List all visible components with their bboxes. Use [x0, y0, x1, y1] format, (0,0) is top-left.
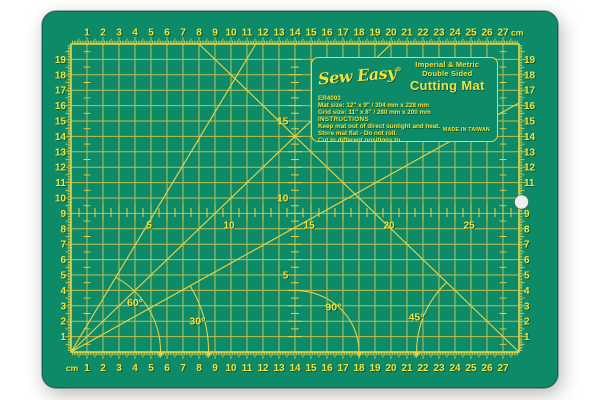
- ruler-number-right: 12: [524, 163, 536, 174]
- panel-tagline-2: Double Sided: [401, 70, 493, 79]
- ruler-number-top: 20: [385, 28, 397, 39]
- ruler-number-left: 13: [55, 147, 67, 158]
- ruler-number-top: 11: [242, 28, 253, 39]
- registered-mark: ®: [395, 66, 401, 73]
- ruler-number-right: 15: [524, 117, 536, 128]
- ruler-number-bottom: 10: [225, 363, 237, 374]
- angle-label-60: 60°: [127, 297, 143, 309]
- ruler-number-bottom: 22: [417, 363, 429, 374]
- ruler-number-top: 6: [164, 28, 170, 39]
- ruler-number-top: 14: [289, 28, 301, 39]
- center-v-ruler-number: 5: [283, 271, 289, 282]
- ruler-number-left: 14: [55, 132, 67, 143]
- model-number: ER4093: [318, 95, 491, 102]
- ruler-number-top: 15: [305, 28, 317, 39]
- ruler-number-top: 23: [433, 28, 445, 39]
- ruler-number-bottom: 16: [321, 363, 333, 374]
- ruler-number-left: 2: [60, 317, 66, 328]
- center-h-ruler-number: 10: [223, 220, 235, 231]
- ruler-number-top: 2: [100, 28, 106, 39]
- ruler-number-top: 3: [116, 28, 122, 39]
- panel-header: Sew Easy® Imperial & Metric Double Sided…: [312, 58, 497, 94]
- ruler-number-top: 17: [337, 28, 349, 39]
- ruler-number-right: 7: [524, 240, 530, 251]
- ruler-number-top: 24: [449, 28, 461, 39]
- ruler-number-right: 1: [524, 332, 530, 343]
- angle-label-45: 45°: [409, 311, 425, 323]
- ruler-number-right: 3: [524, 301, 530, 312]
- ruler-number-left: 1: [60, 332, 66, 343]
- ruler-number-right: 16: [524, 101, 536, 112]
- instruction-line: Cut in different positions to: [318, 137, 491, 142]
- ruler-number-bottom: 12: [257, 363, 269, 374]
- ruler-number-top: 1: [84, 28, 90, 39]
- ruler-number-bottom: 17: [337, 363, 349, 374]
- angle-label-90: 90°: [325, 301, 341, 313]
- ruler-number-right: 4: [524, 286, 530, 297]
- ruler-number-top: 26: [481, 28, 493, 39]
- ruler-number-top: 21: [401, 28, 413, 39]
- ruler-number-right: 5: [524, 271, 530, 282]
- ruler-number-top: 4: [132, 28, 138, 39]
- ruler-number-left: 18: [55, 70, 67, 81]
- ruler-number-top: 9: [212, 28, 218, 39]
- ruler-number-left: 15: [55, 117, 67, 128]
- ruler-number-top: 8: [196, 28, 202, 39]
- ruler-number-top: 19: [369, 28, 381, 39]
- made-in-label: MADE IN TAIWAN: [443, 127, 490, 133]
- ruler-number-right: 6: [524, 255, 530, 266]
- ruler-number-right: 8: [524, 224, 530, 235]
- ruler-number-bottom: 6: [164, 363, 170, 374]
- ruler-number-left: 3: [60, 301, 66, 312]
- ruler-number-left: 19: [55, 55, 67, 66]
- ruler-number-bottom: 7: [180, 363, 186, 374]
- center-h-ruler-number: 25: [463, 220, 475, 231]
- ruler-number-top: 18: [353, 28, 365, 39]
- ruler-number-top: 25: [465, 28, 477, 39]
- ruler-number-left: 16: [55, 101, 67, 112]
- ruler-number-right: 18: [524, 70, 536, 81]
- cutting-mat: 5101551015202560°30°90°45°12345678910111…: [0, 0, 600, 400]
- ruler-number-left: 6: [60, 255, 66, 266]
- label-panel: Sew Easy® Imperial & Metric Double Sided…: [311, 57, 498, 142]
- panel-titles: Imperial & Metric Double Sided Cutting M…: [401, 61, 493, 94]
- center-v-ruler-number: 10: [277, 194, 289, 205]
- ruler-number-top: 12: [257, 28, 269, 39]
- ruler-number-top: 7: [180, 28, 186, 39]
- ruler-number-bottom: 13: [273, 363, 285, 374]
- brand-name: Sew Easy: [317, 63, 396, 89]
- ruler-number-left: 8: [60, 224, 66, 235]
- ruler-number-left: 7: [60, 240, 66, 251]
- ruler-number-bottom: 4: [132, 363, 138, 374]
- ruler-number-right: 9: [524, 209, 530, 220]
- ruler-number-left: 11: [55, 178, 66, 189]
- angle-label-30: 30°: [189, 315, 205, 327]
- ruler-number-right: 19: [524, 55, 536, 66]
- ruler-number-right: 2: [524, 317, 530, 328]
- ruler-number-bottom: 24: [449, 363, 461, 374]
- ruler-number-bottom: 21: [401, 363, 413, 374]
- panel-title: Cutting Mat: [401, 79, 493, 94]
- ruler-number-top: 5: [148, 28, 154, 39]
- instructions-heading: INSTRUCTIONS: [318, 116, 491, 123]
- brand-logo: Sew Easy®: [317, 62, 402, 88]
- unit-label-bottom: cm: [66, 363, 79, 373]
- center-v-ruler-number: 15: [277, 117, 289, 128]
- ruler-number-right: 13: [524, 147, 536, 158]
- ruler-number-bottom: 26: [481, 363, 493, 374]
- ruler-number-left: 5: [60, 271, 66, 282]
- mat-size-line: Mat size: 12" x 9" / 304 mm x 228 mm: [318, 102, 491, 109]
- ruler-number-bottom: 27: [497, 363, 509, 374]
- ruler-number-right: 17: [524, 86, 536, 97]
- ruler-number-bottom: 1: [84, 363, 90, 374]
- ruler-number-bottom: 18: [353, 363, 365, 374]
- product-photo: 5101551015202560°30°90°45°12345678910111…: [0, 0, 600, 400]
- ruler-number-bottom: 2: [100, 363, 106, 374]
- center-h-ruler-number: 20: [383, 220, 395, 231]
- ruler-number-top: 10: [225, 28, 237, 39]
- ruler-number-bottom: 14: [289, 363, 301, 374]
- panel-body: ER4093 Mat size: 12" x 9" / 304 mm x 228…: [312, 94, 497, 142]
- unit-label-top: cm: [511, 28, 524, 38]
- ruler-number-bottom: 25: [465, 363, 477, 374]
- ruler-number-bottom: 20: [385, 363, 397, 374]
- ruler-number-left: 10: [55, 194, 67, 205]
- ruler-number-left: 12: [55, 163, 67, 174]
- ruler-number-bottom: 15: [305, 363, 317, 374]
- ruler-number-left: 17: [55, 86, 67, 97]
- ruler-number-bottom: 3: [116, 363, 122, 374]
- ruler-number-top: 13: [273, 28, 285, 39]
- ruler-number-right: 11: [524, 178, 535, 189]
- ruler-number-bottom: 9: [212, 363, 218, 374]
- ruler-number-right: 14: [524, 132, 536, 143]
- ruler-number-top: 27: [497, 28, 509, 39]
- ruler-number-bottom: 19: [369, 363, 381, 374]
- ruler-number-bottom: 8: [196, 363, 202, 374]
- ruler-number-left: 4: [60, 286, 66, 297]
- ruler-number-bottom: 23: [433, 363, 445, 374]
- ruler-number-bottom: 11: [242, 363, 253, 374]
- ruler-number-top: 22: [417, 28, 429, 39]
- hanging-hole: [515, 195, 529, 209]
- ruler-number-top: 16: [321, 28, 333, 39]
- ruler-number-left: 9: [60, 209, 66, 220]
- ruler-number-bottom: 5: [148, 363, 154, 374]
- grid-size-line: Grid size: 11" x 8" / 280 mm x 200 mm: [318, 109, 491, 116]
